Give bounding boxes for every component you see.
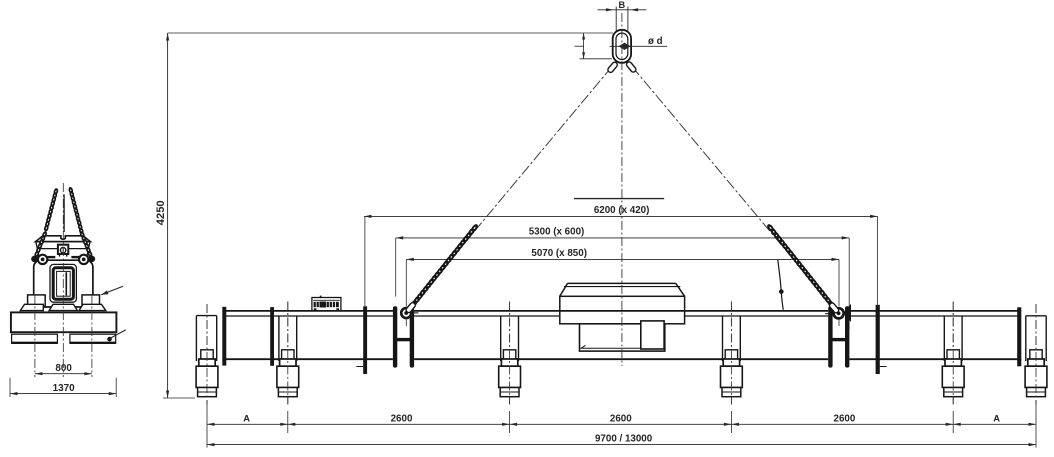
svg-text:2600: 2600 [610,413,632,424]
svg-text:5070 (x 850): 5070 (x 850) [531,248,587,259]
svg-text:4250: 4250 [155,200,167,225]
svg-text:ø d: ø d [648,36,663,47]
svg-text:800: 800 [55,363,72,374]
svg-text:2600: 2600 [834,413,856,424]
svg-text:1370: 1370 [53,383,75,394]
svg-text:2600: 2600 [391,413,413,424]
svg-text:9700 / 13000: 9700 / 13000 [595,434,653,445]
svg-text:B: B [618,0,625,10]
svg-text:5300 (x 600): 5300 (x 600) [529,227,585,238]
svg-text:A: A [993,412,1000,423]
svg-text:A: A [243,412,250,423]
